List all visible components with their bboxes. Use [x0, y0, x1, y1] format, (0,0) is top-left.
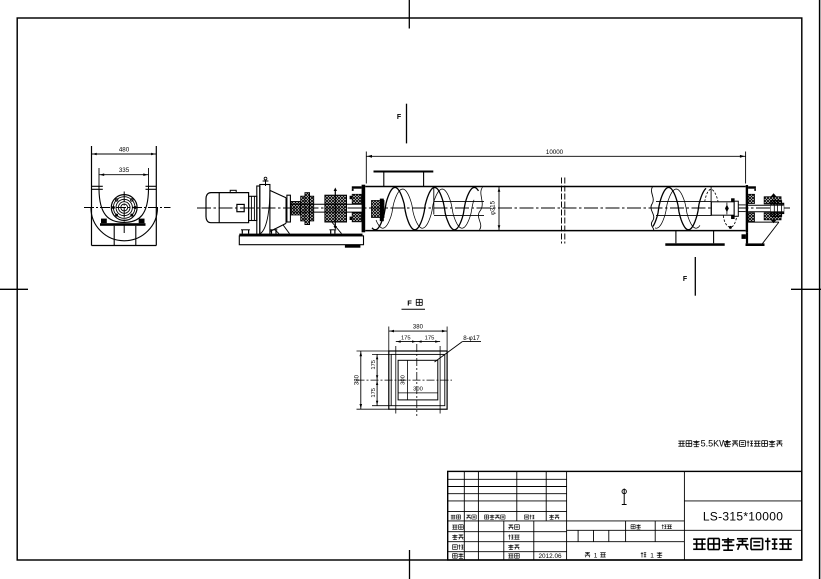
svg-text:175: 175 [371, 388, 377, 398]
svg-text:300: 300 [413, 387, 423, 393]
svg-text:F: F [397, 114, 402, 121]
svg-text:8-φ17: 8-φ17 [463, 335, 480, 342]
svg-text:335: 335 [119, 167, 130, 174]
svg-text:F: F [683, 276, 688, 283]
svg-text:380: 380 [413, 325, 424, 331]
svg-text:1: 1 [594, 553, 598, 560]
svg-text:5.5KW: 5.5KW [701, 439, 729, 449]
svg-text:2012.06: 2012.06 [539, 553, 563, 560]
svg-text:10000: 10000 [546, 149, 564, 156]
svg-text:175: 175 [371, 360, 377, 370]
svg-text:φ315: φ315 [491, 200, 497, 215]
svg-text:175: 175 [401, 335, 411, 341]
svg-text:1: 1 [650, 553, 654, 560]
svg-text:300: 300 [400, 375, 406, 385]
svg-text:175: 175 [425, 335, 435, 341]
svg-text:LS-315*10000: LS-315*10000 [703, 510, 783, 524]
svg-text:380: 380 [354, 374, 360, 385]
svg-text:F: F [407, 299, 412, 308]
svg-text:480: 480 [119, 147, 130, 154]
